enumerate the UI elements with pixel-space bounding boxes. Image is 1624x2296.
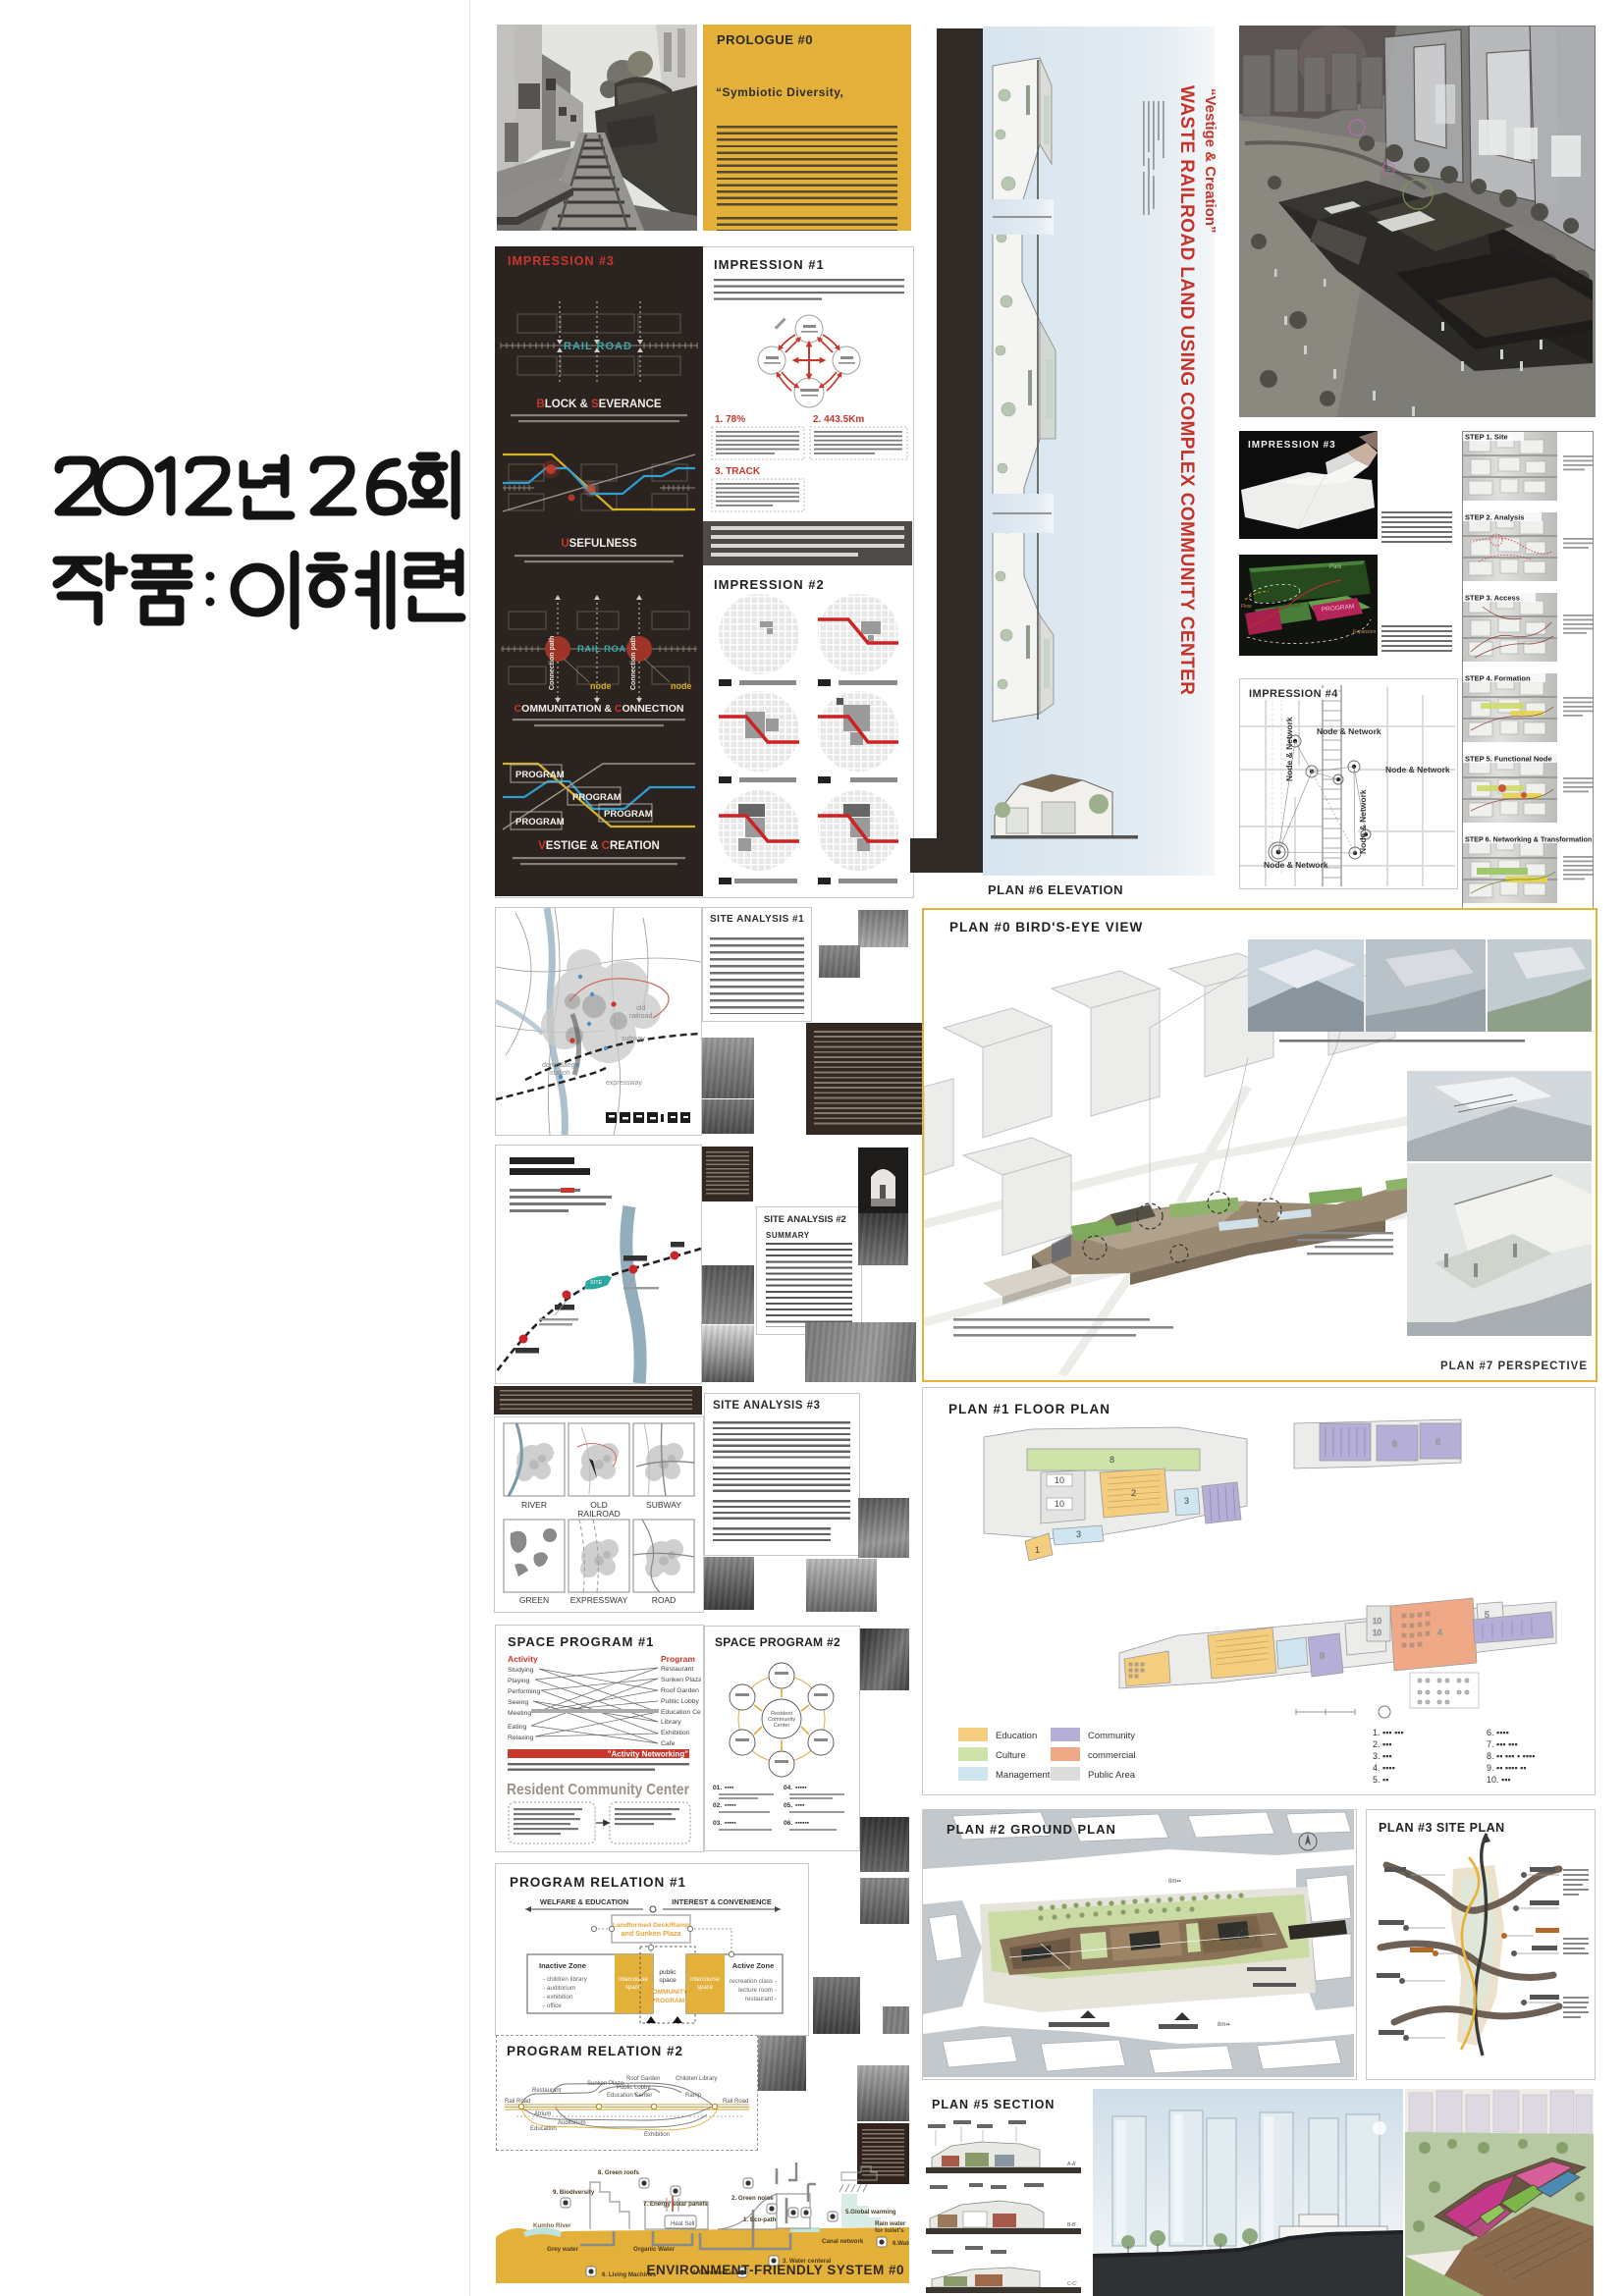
svg-text:Kumho River: Kumho River: [533, 2222, 571, 2229]
svg-text:Park: Park: [1329, 564, 1342, 570]
svg-text:Atrium: Atrium: [534, 2111, 551, 2117]
svg-text:1: 1: [1035, 1545, 1040, 1555]
svg-text:02.: 02.: [713, 1802, 722, 1809]
svg-text:2. Green noise: 2. Green noise: [731, 2195, 774, 2202]
svg-text:GREEN: GREEN: [519, 1595, 549, 1605]
svg-text:Education: Education: [530, 2126, 557, 2132]
svg-text:4: 4: [1437, 1628, 1442, 1637]
svg-text:Canal network: Canal network: [822, 2238, 864, 2245]
svg-text:6. ▪▪▪▪: 6. ▪▪▪▪: [1487, 1728, 1509, 1737]
svg-text:space: space: [697, 1985, 714, 1991]
svg-text:Management: Management: [996, 1770, 1051, 1781]
svg-text:public: public: [659, 1969, 677, 1976]
svg-text:Education Center: Education Center: [607, 2093, 652, 2099]
svg-text:PLAN #0 BIRD'S-EYE VIEW: PLAN #0 BIRD'S-EYE VIEW: [949, 920, 1143, 934]
svg-text:Public Lobby: Public Lobby: [617, 2085, 650, 2091]
svg-text:intercourse: intercourse: [619, 1977, 648, 1983]
svg-text:Node & Network: Node & Network: [1317, 726, 1381, 736]
svg-text:ROAD: ROAD: [652, 1595, 677, 1605]
svg-text:PLAN #1 FLOOR PLAN: PLAN #1 FLOOR PLAN: [948, 1402, 1110, 1416]
svg-text:- office: - office: [543, 2002, 562, 2009]
svg-text:node: node: [671, 681, 692, 691]
svg-text:Playing: Playing: [508, 1678, 530, 1684]
svg-text:PLAN #5 SECTION: PLAN #5 SECTION: [932, 2098, 1055, 2111]
svg-text:2: 2: [1131, 1488, 1136, 1498]
svg-text:Sunken Plaza: Sunken Plaza: [661, 1677, 701, 1683]
svg-text:Expansion: Expansion: [1353, 629, 1377, 635]
svg-text:PROGRAM RELATION #1: PROGRAM RELATION #1: [510, 1875, 686, 1890]
svg-text:2. 443.5Km: 2. 443.5Km: [813, 414, 864, 425]
svg-text:VESTIGE & CREATION: VESTIGE & CREATION: [538, 840, 660, 852]
svg-text:6.Water: 6.Water: [893, 2240, 909, 2247]
svg-text:Active Zone: Active Zone: [732, 1961, 775, 1970]
svg-text:railroad: railroad: [629, 1013, 652, 1020]
svg-text:04.: 04.: [784, 1785, 792, 1791]
svg-text:▪▪▪▪▪: ▪▪▪▪▪: [795, 1785, 807, 1791]
svg-text:COMMUNITY: COMMUNITY: [648, 1989, 688, 1996]
svg-text:station: station: [550, 1070, 570, 1077]
svg-text:IMPRESSION #2: IMPRESSION #2: [714, 577, 825, 592]
svg-text:Ramp: Ramp: [685, 2093, 702, 2099]
svg-text:Flow: Flow: [1241, 604, 1252, 610]
svg-text:4. ▪▪▪▪: 4. ▪▪▪▪: [1373, 1763, 1395, 1773]
svg-text:RAIL ROAD: RAIL ROAD: [564, 341, 632, 352]
svg-text:Resident Community Center: Resident Community Center: [507, 1782, 689, 1798]
svg-text:10: 10: [1373, 1629, 1381, 1637]
svg-text:Node & Network: Node & Network: [1385, 765, 1450, 774]
svg-text:8: 8: [1110, 1455, 1114, 1465]
svg-text:Roof Garden: Roof Garden: [626, 2076, 660, 2082]
svg-text:03.: 03.: [713, 1820, 722, 1827]
svg-text:Restaurant: Restaurant: [532, 2088, 562, 2094]
svg-text:STEP 4. Formation: STEP 4. Formation: [1465, 674, 1531, 683]
svg-text:Heat Sell: Heat Sell: [671, 2221, 694, 2227]
svg-text:Connection path: Connection path: [630, 636, 637, 690]
svg-text:PROGRAM RELATION #2: PROGRAM RELATION #2: [507, 2044, 683, 2058]
svg-text:5. ▪▪: 5. ▪▪: [1373, 1775, 1388, 1785]
svg-text:PLAN #7 PERSPECTIVE: PLAN #7 PERSPECTIVE: [1440, 1361, 1588, 1372]
svg-text:8m▪▪: 8m▪▪: [1218, 2022, 1230, 2028]
svg-text:expressway: expressway: [606, 1080, 642, 1087]
svg-text:9. Biodiversity: 9. Biodiversity: [553, 2189, 595, 2196]
svg-text:STEP 6. Networking & Transform: STEP 6. Networking & Transformation: [1465, 835, 1592, 844]
svg-text:▪▪▪▪▪: ▪▪▪▪▪: [725, 1820, 736, 1827]
svg-text:9. ▪▪ ▪▪▪▪ ▪▪: 9. ▪▪ ▪▪▪▪ ▪▪: [1487, 1763, 1527, 1773]
svg-text:space: space: [659, 1977, 677, 1984]
svg-text:3: 3: [1076, 1529, 1081, 1539]
svg-text:Rail Road: Rail Road: [505, 2099, 530, 2105]
svg-text:EXPRESSWAY: EXPRESSWAY: [570, 1595, 628, 1605]
svg-text:STEP 2. Analysis: STEP 2. Analysis: [1465, 513, 1524, 522]
svg-text:3. TRACK: 3. TRACK: [715, 466, 761, 477]
svg-text:Restaurant: Restaurant: [661, 1666, 693, 1673]
svg-text:10: 10: [1373, 1617, 1381, 1626]
svg-text:lecture room -: lecture room -: [738, 1987, 777, 1994]
svg-text:PROGRAM: PROGRAM: [604, 809, 653, 820]
svg-text:node: node: [590, 681, 612, 691]
svg-text:INTEREST & CONVENIENCE: INTEREST & CONVENIENCE: [672, 1897, 772, 1906]
svg-text:Cafe: Cafe: [661, 1740, 676, 1747]
svg-text:Seeing: Seeing: [508, 1699, 528, 1706]
svg-text:PROGRAM: PROGRAM: [651, 1998, 685, 2004]
svg-text:Grey water: Grey water: [547, 2246, 579, 2253]
svg-text:commercial: commercial: [1088, 1750, 1136, 1761]
svg-text:Library: Library: [661, 1719, 681, 1726]
svg-text:Performing: Performing: [508, 1688, 540, 1695]
svg-text:9: 9: [1320, 1651, 1325, 1661]
svg-text:7. Energy solar panels: 7. Energy solar panels: [643, 2201, 708, 2208]
svg-text:SPACE PROGRAM #2: SPACE PROGRAM #2: [715, 1635, 840, 1649]
svg-text:Node & Network: Node & Network: [1264, 860, 1328, 870]
svg-text:STEP 3. Access: STEP 3. Access: [1465, 594, 1520, 603]
svg-text:Public Area: Public Area: [1088, 1770, 1136, 1781]
svg-text:USEFULNESS: USEFULNESS: [561, 538, 637, 550]
svg-text:Exhibition: Exhibition: [644, 2132, 670, 2138]
svg-text:recreation class -: recreation class -: [730, 1978, 777, 1985]
svg-text:10: 10: [1055, 1475, 1064, 1485]
svg-text:SUBWAY: SUBWAY: [646, 1500, 681, 1510]
svg-text:06.: 06.: [784, 1820, 792, 1827]
svg-text:1. 78%: 1. 78%: [715, 414, 745, 425]
svg-text:▪▪▪▪: ▪▪▪▪: [725, 1785, 733, 1791]
svg-text:1. ▪▪▪ ▪▪▪: 1. ▪▪▪ ▪▪▪: [1373, 1728, 1404, 1737]
svg-text:▪▪▪▪▪: ▪▪▪▪▪: [725, 1802, 736, 1809]
svg-text:PROGRAM: PROGRAM: [515, 817, 565, 828]
svg-text:PROGRAM: PROGRAM: [572, 792, 622, 803]
svg-text:8. Green roofs: 8. Green roofs: [598, 2169, 640, 2176]
svg-text:subway: subway: [622, 1036, 645, 1042]
svg-text:STEP 1. Site: STEP 1. Site: [1465, 433, 1508, 442]
svg-text:PROGRAM: PROGRAM: [515, 770, 565, 780]
svg-text:STEP 5. Functional Node: STEP 5. Functional Node: [1465, 755, 1552, 764]
svg-text:1. Eco-path: 1. Eco-path: [743, 2216, 777, 2223]
svg-text:WELFARE & EDUCATION: WELFARE & EDUCATION: [540, 1897, 628, 1906]
svg-text:01.: 01.: [713, 1785, 722, 1791]
svg-text:RIVER: RIVER: [521, 1500, 547, 1510]
svg-text:SITE: SITE: [590, 1280, 603, 1286]
svg-text:Exhibition: Exhibition: [661, 1730, 690, 1736]
svg-text:Meeting: Meeting: [508, 1710, 531, 1717]
svg-text:space: space: [625, 1985, 642, 1991]
svg-text:A-A': A-A': [1067, 2162, 1076, 2167]
svg-text:▪▪▪▪▪▪: ▪▪▪▪▪▪: [795, 1820, 809, 1827]
svg-text:Inactive Zone: Inactive Zone: [539, 1961, 586, 1970]
svg-text:Connection path: Connection path: [549, 636, 556, 690]
svg-text:IMPRESSION #1: IMPRESSION #1: [714, 257, 825, 272]
svg-text:Culture: Culture: [996, 1750, 1026, 1761]
svg-text:3. ▪▪▪: 3. ▪▪▪: [1373, 1751, 1392, 1761]
svg-text:Node & Network: Node & Network: [1358, 789, 1368, 854]
svg-text:8m▪▪: 8m▪▪: [1168, 1879, 1181, 1885]
svg-text:▪▪: ▪▪: [1314, 1924, 1318, 1930]
svg-text:C-C': C-C': [1067, 2281, 1077, 2287]
svg-text:Organic Water: Organic Water: [633, 2246, 676, 2253]
svg-text:Children Library: Children Library: [676, 2076, 717, 2082]
svg-text:Relaxing: Relaxing: [508, 1735, 534, 1741]
svg-text:- children library: - children library: [543, 1976, 588, 1983]
svg-text:for toilet's: for toilet's: [875, 2227, 904, 2234]
svg-text:Node & Network: Node & Network: [1284, 717, 1294, 781]
svg-text:SPACE PROGRAM #1: SPACE PROGRAM #1: [508, 1634, 654, 1649]
svg-text:5.Global warming: 5.Global warming: [845, 2209, 896, 2216]
svg-text:8. ▪▪ ▪▪▪ ▪ ▪▪▪▪: 8. ▪▪ ▪▪▪ ▪ ▪▪▪▪: [1487, 1751, 1535, 1761]
svg-text:PLAN #3 SITE PLAN: PLAN #3 SITE PLAN: [1379, 1821, 1505, 1835]
svg-text:3: 3: [1184, 1496, 1189, 1506]
svg-text:2. ▪▪▪: 2. ▪▪▪: [1373, 1739, 1392, 1749]
svg-text:IMPRESSION #3: IMPRESSION #3: [508, 254, 615, 268]
svg-text:Rail Road: Rail Road: [723, 2099, 748, 2105]
svg-text:Public Lobby: Public Lobby: [661, 1698, 700, 1705]
svg-text:- exhibition: - exhibition: [543, 1994, 573, 2001]
svg-text:COMMUNITATION & CONNECTION: COMMUNITATION & CONNECTION: [514, 703, 684, 715]
svg-text:RAIL ROAD: RAIL ROAD: [577, 644, 633, 655]
svg-text:B-B': B-B': [1067, 2222, 1076, 2228]
svg-text:and Sunken Plaza: and Sunken Plaza: [621, 1929, 681, 1938]
svg-text:Rain water: Rain water: [875, 2220, 906, 2227]
svg-text:6: 6: [1392, 1439, 1397, 1449]
svg-text:10. ▪▪▪: 10. ▪▪▪: [1487, 1775, 1511, 1785]
svg-text:BLOCK & SEVERANCE: BLOCK & SEVERANCE: [536, 399, 661, 410]
svg-text:PLAN #2 GROUND PLAN: PLAN #2 GROUND PLAN: [947, 1822, 1116, 1837]
svg-text:intercourse: intercourse: [690, 1977, 720, 1983]
svg-text:"Activity Networking": "Activity Networking": [608, 1750, 688, 1759]
svg-text:Auditorium: Auditorium: [558, 2120, 586, 2126]
svg-text:ENVIRONMENT-FRIENDLY SYSTEM #0: ENVIRONMENT-FRIENDLY SYSTEM #0: [646, 2263, 904, 2277]
svg-text:Studying: Studying: [508, 1667, 534, 1674]
svg-text:Education: Education: [996, 1731, 1037, 1741]
svg-text:10: 10: [1055, 1499, 1064, 1509]
svg-text:Roof Garden: Roof Garden: [661, 1687, 699, 1694]
svg-text:RAILROAD: RAILROAD: [577, 1509, 620, 1519]
svg-text:Eating: Eating: [508, 1724, 526, 1731]
svg-text:▪▪▪▪: ▪▪▪▪: [795, 1802, 804, 1809]
svg-text:- auditorium: - auditorium: [543, 1985, 575, 1992]
svg-text:6: 6: [1435, 1437, 1440, 1447]
svg-text:Education Center: Education Center: [661, 1709, 701, 1716]
svg-text:05.: 05.: [784, 1802, 792, 1809]
svg-text:Landformed Deck/Ramp: Landformed Deck/Ramp: [613, 1922, 689, 1929]
svg-text:Program: Program: [661, 1654, 695, 1664]
svg-text:restaurant -: restaurant -: [745, 1996, 777, 2002]
svg-text:old: old: [636, 1005, 645, 1012]
svg-text:Center: Center: [774, 1723, 790, 1729]
svg-text:dong-daegu: dong-daegu: [542, 1062, 578, 1069]
svg-text:7. ▪▪▪ ▪▪▪: 7. ▪▪▪ ▪▪▪: [1487, 1739, 1518, 1749]
svg-text:Activity: Activity: [508, 1654, 538, 1664]
svg-text:Community: Community: [1088, 1731, 1135, 1741]
